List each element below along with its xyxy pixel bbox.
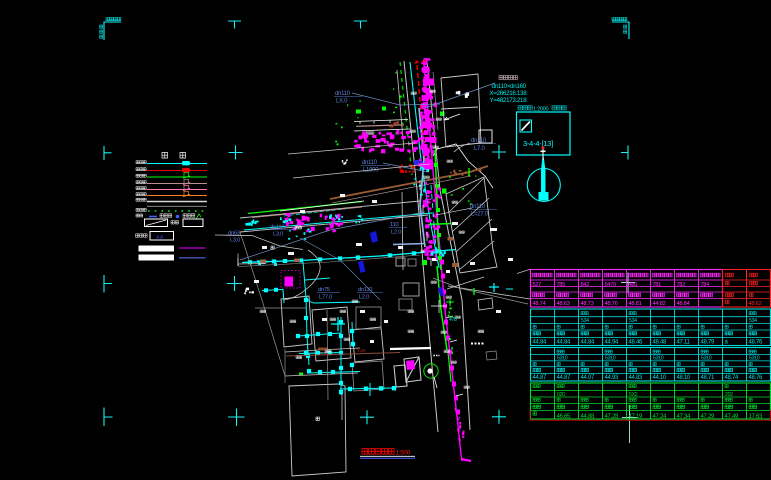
svg-text:48.63: 48.63	[557, 301, 570, 307]
svg-text:47.29: 47.29	[701, 414, 715, 420]
svg-text:48.76: 48.76	[749, 340, 763, 346]
svg-text:44.94: 44.94	[605, 340, 619, 346]
svg-text:L2.0: L2.0	[359, 295, 369, 301]
svg-text:44.83: 44.83	[629, 375, 643, 381]
svg-text:48.71: 48.71	[701, 375, 715, 381]
svg-text:5310: 5310	[605, 355, 616, 361]
svg-text:478: 478	[449, 317, 457, 323]
svg-text:020: 020	[557, 392, 565, 398]
svg-text:5310: 5310	[749, 355, 760, 361]
svg-text:44.84: 44.84	[581, 340, 595, 346]
svg-text:L3.0: L3.0	[230, 238, 240, 244]
svg-text:480: 480	[629, 282, 638, 288]
svg-text:L77.0: L77.0	[319, 295, 332, 301]
svg-text:785: 785	[557, 282, 566, 288]
svg-text:47.28: 47.28	[605, 414, 619, 420]
svg-text:5310: 5310	[653, 355, 664, 361]
svg-text:782: 782	[677, 282, 686, 288]
svg-text:48.62: 48.62	[749, 301, 762, 307]
svg-text:dn110: dn110	[362, 160, 378, 166]
svg-text:5479: 5479	[605, 282, 616, 288]
svg-text:AA: AA	[156, 235, 164, 241]
svg-text:47.34: 47.34	[677, 414, 691, 420]
svg-text:48.76: 48.76	[749, 375, 763, 381]
svg-text:44.82: 44.82	[653, 301, 666, 307]
svg-text:L7.0: L7.0	[474, 146, 485, 152]
svg-text:48.79: 48.79	[701, 340, 715, 346]
svg-text:L3.0: L3.0	[273, 232, 283, 238]
svg-text:527: 527	[533, 282, 542, 288]
svg-text:44.87: 44.87	[533, 375, 547, 381]
svg-text:48.73: 48.73	[581, 301, 594, 307]
svg-text:784: 784	[701, 282, 710, 288]
svg-text:7.1X: 7.1X	[320, 351, 328, 356]
svg-text:5310: 5310	[701, 355, 712, 361]
svg-text:47.19: 47.19	[629, 414, 643, 420]
svg-text:44.10: 44.10	[653, 375, 667, 381]
svg-text:44.87: 44.87	[557, 375, 571, 381]
svg-text:44.84: 44.84	[533, 340, 547, 346]
svg-text:5310: 5310	[557, 355, 568, 361]
svg-text:202: 202	[725, 392, 733, 398]
svg-text:Y=482173.218: Y=482173.218	[490, 97, 528, 104]
svg-text:44.93: 44.93	[605, 375, 619, 381]
svg-text:47.49: 47.49	[725, 414, 739, 420]
svg-text:47.24: 47.24	[653, 414, 667, 420]
svg-text:534: 534	[581, 318, 589, 324]
svg-text:dn110: dn110	[358, 287, 372, 293]
svg-text:48.84: 48.84	[677, 301, 691, 307]
svg-text:44.07: 44.07	[581, 375, 595, 381]
svg-text:5X2: 5X2	[629, 392, 638, 398]
svg-text:48.74: 48.74	[533, 301, 547, 307]
svg-text:48.48: 48.48	[653, 340, 667, 346]
svg-text:46.65: 46.65	[557, 414, 571, 420]
svg-text:3-4-4-[13]: 3-4-4-[13]	[523, 139, 553, 148]
svg-text:dn110: dn110	[470, 204, 486, 210]
svg-text:534: 534	[629, 318, 637, 324]
svg-text:48.81: 48.81	[629, 301, 642, 307]
svg-text:48.46: 48.46	[629, 340, 643, 346]
svg-text:110: 110	[390, 222, 398, 228]
svg-text:7.2X: 7.2X	[357, 348, 365, 353]
svg-text:1:500: 1:500	[396, 450, 411, 457]
svg-text:a: a	[725, 340, 729, 346]
svg-text:48.10: 48.10	[677, 375, 691, 381]
svg-text:17.63: 17.63	[749, 414, 763, 420]
svg-text:842: 842	[581, 282, 590, 288]
svg-text:44.84: 44.84	[557, 340, 571, 346]
svg-text:781: 781	[653, 282, 662, 288]
svg-text:534: 534	[749, 318, 757, 324]
svg-text:44.88: 44.88	[581, 414, 595, 420]
svg-text:48.74: 48.74	[725, 375, 739, 381]
svg-text:48.76: 48.76	[605, 301, 618, 307]
svg-text:L2.0: L2.0	[391, 230, 401, 236]
svg-text:dn110×dn160: dn110×dn160	[492, 83, 527, 90]
svg-text:dn110: dn110	[335, 91, 351, 97]
svg-text:dn75: dn75	[318, 287, 330, 293]
svg-text:LX.0: LX.0	[336, 99, 348, 105]
svg-text:47.11: 47.11	[677, 340, 691, 346]
